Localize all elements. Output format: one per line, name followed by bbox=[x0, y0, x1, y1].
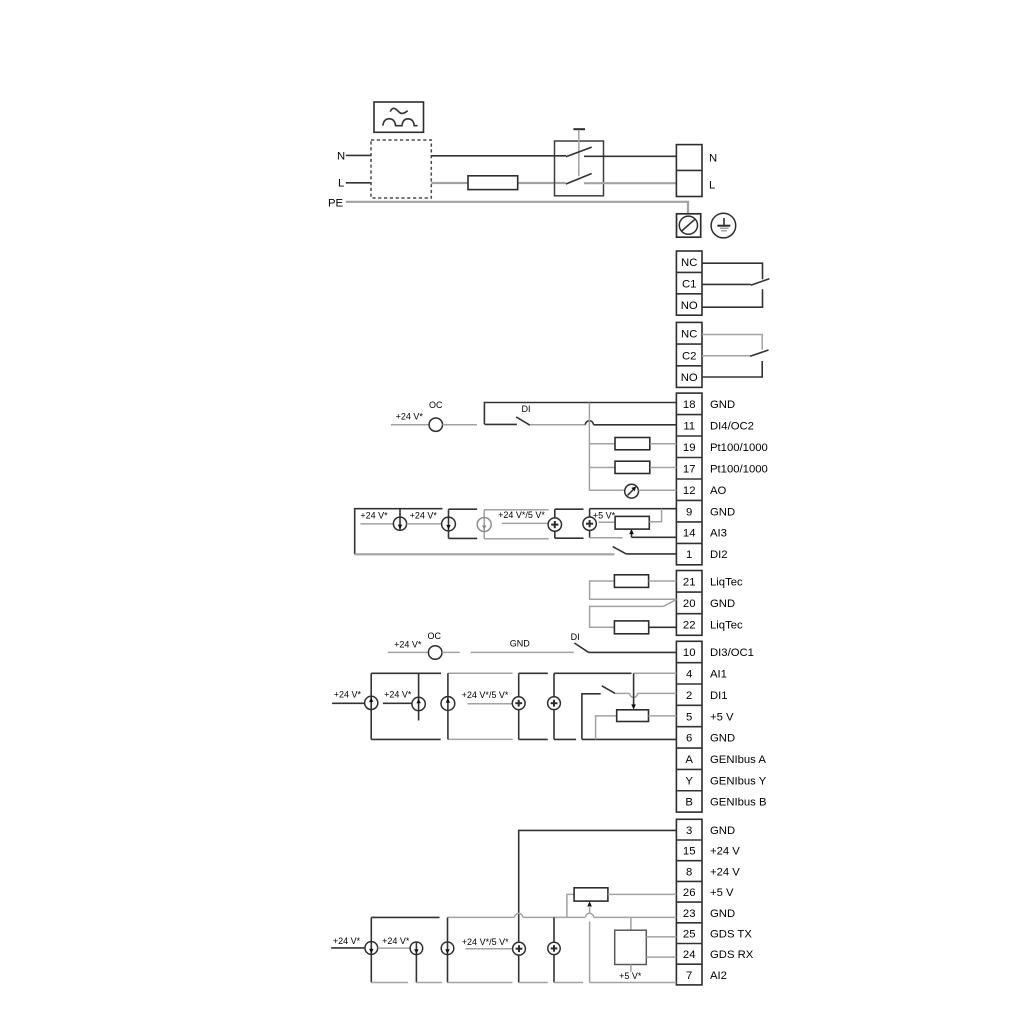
svg-text:GDS TX: GDS TX bbox=[710, 929, 752, 941]
svg-text:7: 7 bbox=[686, 970, 692, 982]
svg-text:21: 21 bbox=[683, 576, 696, 588]
svg-text:PE: PE bbox=[328, 197, 344, 209]
svg-text:12: 12 bbox=[683, 485, 696, 497]
svg-text:+24 V*: +24 V* bbox=[394, 640, 422, 650]
svg-text:26: 26 bbox=[683, 887, 696, 899]
svg-text:20: 20 bbox=[683, 598, 696, 610]
svg-text:B: B bbox=[685, 797, 693, 809]
svg-text:8: 8 bbox=[686, 866, 692, 878]
svg-text:DI1: DI1 bbox=[710, 690, 728, 702]
svg-text:1: 1 bbox=[686, 549, 692, 561]
svg-text:OC: OC bbox=[428, 631, 442, 641]
svg-text:+5 V: +5 V bbox=[710, 887, 734, 899]
svg-text:+24 V: +24 V bbox=[710, 846, 740, 858]
svg-text:GND: GND bbox=[510, 638, 531, 648]
svg-text:C2: C2 bbox=[682, 350, 696, 362]
svg-text:C1: C1 bbox=[682, 278, 696, 290]
svg-text:6: 6 bbox=[686, 733, 692, 745]
svg-text:OC: OC bbox=[429, 400, 443, 410]
svg-text:GENIbus A: GENIbus A bbox=[710, 754, 766, 766]
svg-text:L: L bbox=[709, 180, 715, 192]
svg-text:+24 V*: +24 V* bbox=[384, 689, 412, 699]
svg-text:A: A bbox=[685, 754, 693, 766]
svg-text:NO: NO bbox=[681, 300, 698, 312]
svg-text:+5 V*: +5 V* bbox=[593, 510, 616, 520]
svg-text:18: 18 bbox=[683, 399, 696, 411]
svg-text:24: 24 bbox=[683, 949, 696, 961]
svg-text:+24 V*: +24 V* bbox=[360, 510, 388, 520]
svg-text:DI2: DI2 bbox=[710, 549, 728, 561]
svg-text:LiqTec: LiqTec bbox=[710, 620, 743, 632]
svg-text:Pt100/1000: Pt100/1000 bbox=[710, 463, 768, 475]
svg-text:+24 V*: +24 V* bbox=[382, 936, 410, 946]
svg-text:GND: GND bbox=[710, 598, 735, 610]
svg-text:L: L bbox=[338, 177, 344, 189]
svg-text:AI2: AI2 bbox=[710, 970, 727, 982]
svg-text:11: 11 bbox=[683, 420, 695, 432]
svg-text:23: 23 bbox=[683, 908, 696, 920]
svg-text:NO: NO bbox=[681, 372, 698, 384]
svg-text:NC: NC bbox=[681, 329, 697, 341]
svg-text:DI3/OC1: DI3/OC1 bbox=[710, 647, 754, 659]
svg-text:NC: NC bbox=[681, 257, 697, 269]
svg-text:14: 14 bbox=[683, 528, 696, 540]
svg-text:22: 22 bbox=[683, 620, 696, 632]
svg-text:GND: GND bbox=[710, 506, 735, 518]
svg-text:GND: GND bbox=[710, 733, 735, 745]
svg-text:17: 17 bbox=[683, 463, 696, 475]
svg-text:15: 15 bbox=[683, 846, 696, 858]
svg-text:GND: GND bbox=[710, 908, 735, 920]
svg-text:AO: AO bbox=[710, 485, 727, 497]
svg-text:Pt100/1000: Pt100/1000 bbox=[710, 442, 768, 454]
svg-text:GENIbus B: GENIbus B bbox=[710, 797, 767, 809]
svg-text:+24 V*: +24 V* bbox=[334, 689, 362, 699]
svg-text:Y: Y bbox=[685, 775, 693, 787]
svg-text:DI: DI bbox=[522, 404, 531, 414]
svg-text:N: N bbox=[337, 151, 345, 163]
svg-text:+5 V*: +5 V* bbox=[619, 971, 642, 981]
svg-text:+24 V*: +24 V* bbox=[333, 936, 361, 946]
svg-text:GENIbus Y: GENIbus Y bbox=[710, 775, 767, 787]
svg-text:2: 2 bbox=[686, 690, 692, 702]
svg-text:AI3: AI3 bbox=[710, 528, 727, 540]
svg-text:4: 4 bbox=[686, 669, 692, 681]
svg-text:10: 10 bbox=[683, 647, 696, 659]
svg-text:+24 V: +24 V bbox=[710, 866, 740, 878]
svg-text:N: N bbox=[709, 153, 717, 165]
svg-text:DI: DI bbox=[571, 632, 580, 642]
svg-text:GDS RX: GDS RX bbox=[710, 949, 754, 961]
svg-text:GND: GND bbox=[710, 399, 735, 411]
svg-text:GND: GND bbox=[710, 825, 735, 837]
svg-text:3: 3 bbox=[686, 825, 692, 837]
svg-text:25: 25 bbox=[683, 929, 696, 941]
svg-text:9: 9 bbox=[686, 506, 692, 518]
svg-text:DI4/OC2: DI4/OC2 bbox=[710, 420, 754, 432]
svg-text:5: 5 bbox=[686, 711, 692, 723]
svg-text:AI1: AI1 bbox=[710, 669, 727, 681]
svg-text:+24 V*/5 V*: +24 V*/5 V* bbox=[462, 690, 509, 700]
svg-text:+24 V*: +24 V* bbox=[396, 412, 424, 422]
svg-text:+5 V: +5 V bbox=[710, 711, 734, 723]
svg-text:+24 V*/5 V*: +24 V*/5 V* bbox=[498, 510, 545, 520]
svg-text:+24 V*/5 V*: +24 V*/5 V* bbox=[462, 937, 509, 947]
svg-text:LiqTec: LiqTec bbox=[710, 576, 743, 588]
svg-text:19: 19 bbox=[683, 442, 696, 454]
svg-text:+24 V*: +24 V* bbox=[410, 510, 438, 520]
